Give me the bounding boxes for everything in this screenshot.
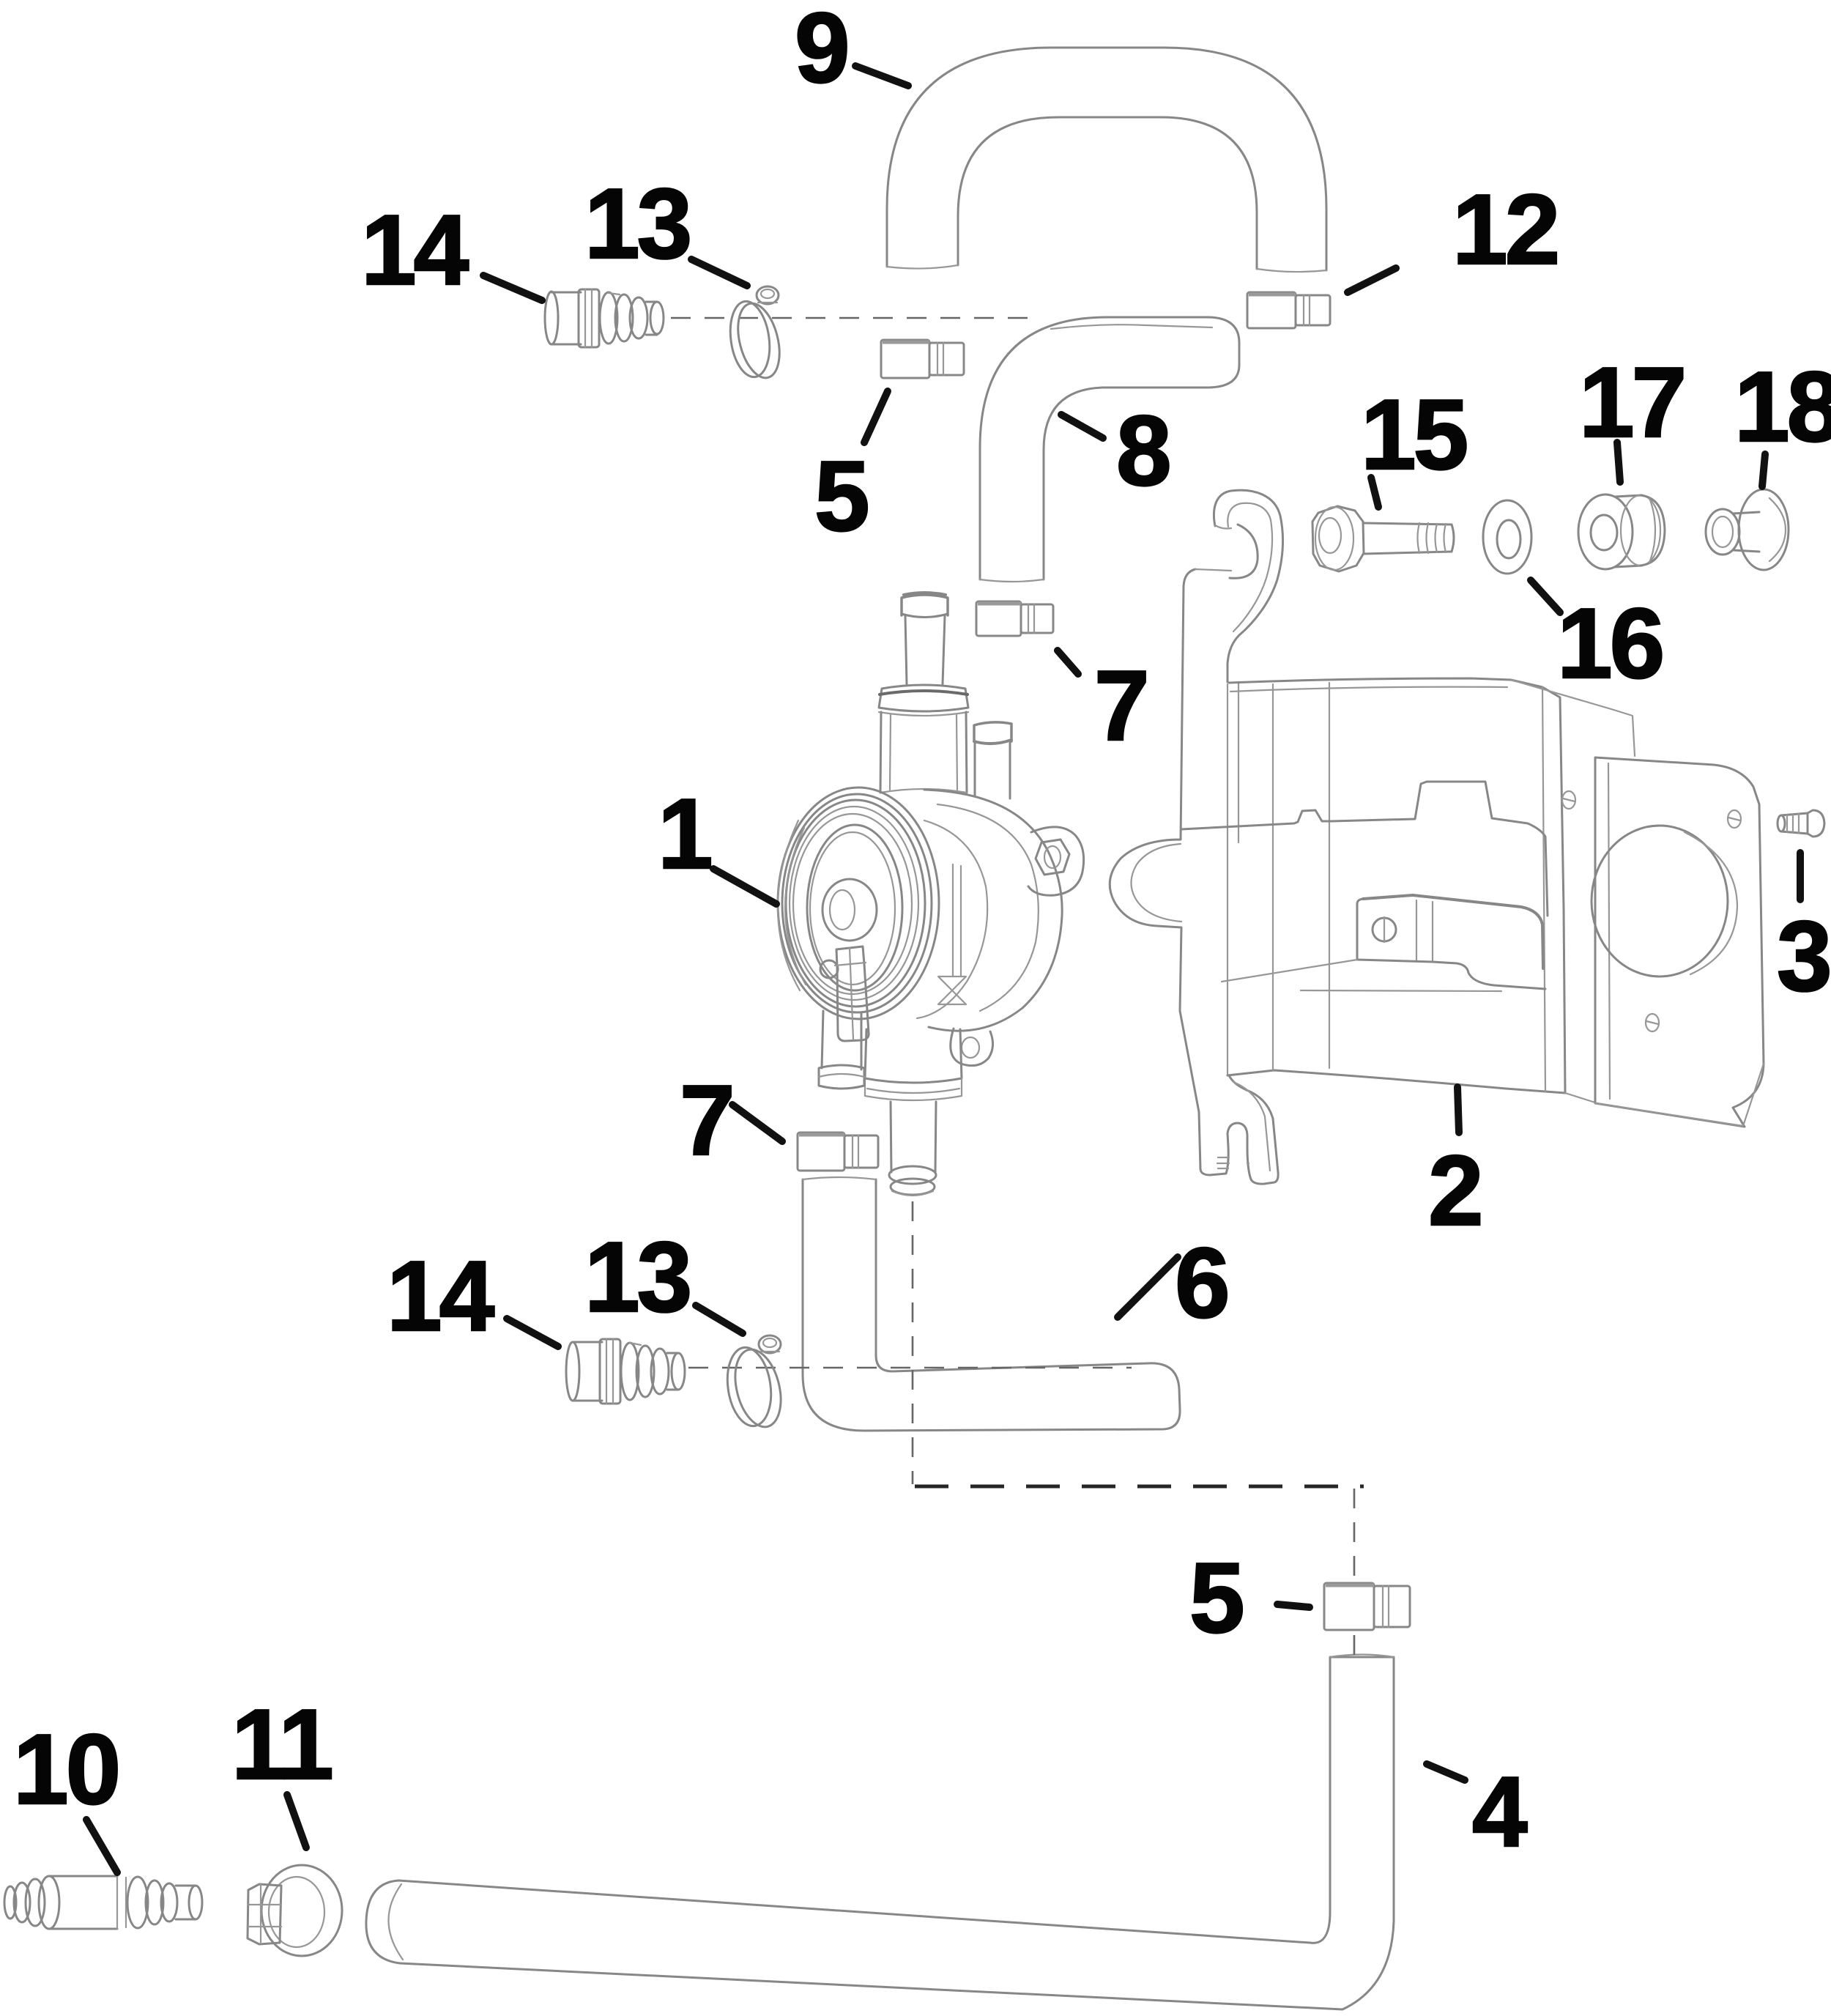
svg-text:1: 1 bbox=[658, 778, 710, 889]
svg-text:11: 11 bbox=[231, 1689, 331, 1800]
svg-text:16: 16 bbox=[1557, 588, 1662, 699]
svg-text:13: 13 bbox=[584, 1221, 689, 1333]
svg-text:7: 7 bbox=[680, 1064, 732, 1176]
svg-text:5: 5 bbox=[814, 440, 867, 552]
svg-text:10: 10 bbox=[13, 1713, 118, 1825]
svg-text:12: 12 bbox=[1452, 174, 1557, 285]
svg-text:14: 14 bbox=[387, 1240, 494, 1352]
svg-text:3: 3 bbox=[1777, 900, 1830, 1012]
svg-text:2: 2 bbox=[1428, 1135, 1481, 1246]
svg-text:6: 6 bbox=[1175, 1227, 1228, 1338]
svg-text:15: 15 bbox=[1361, 379, 1466, 490]
svg-text:9: 9 bbox=[795, 0, 847, 103]
svg-text:14: 14 bbox=[361, 194, 469, 305]
svg-text:4: 4 bbox=[1472, 1756, 1527, 1867]
svg-text:5: 5 bbox=[1189, 1542, 1242, 1653]
svg-text:18: 18 bbox=[1734, 351, 1831, 462]
svg-text:7: 7 bbox=[1094, 650, 1147, 761]
svg-text:8: 8 bbox=[1116, 395, 1169, 506]
svg-text:17: 17 bbox=[1579, 346, 1684, 458]
svg-text:13: 13 bbox=[584, 168, 689, 279]
